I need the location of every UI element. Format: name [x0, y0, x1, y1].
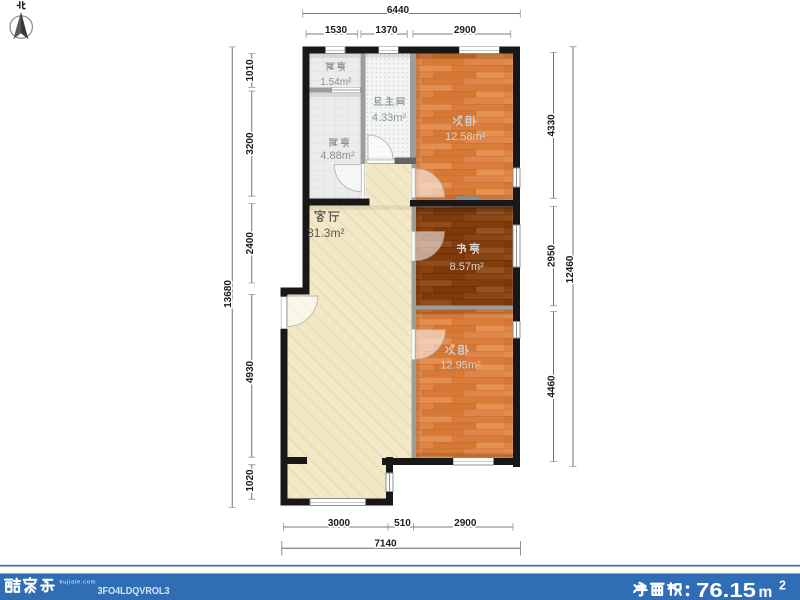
svg-text:13680: 13680: [223, 280, 234, 308]
svg-text:4930: 4930: [245, 360, 256, 383]
svg-text:m: m: [759, 584, 773, 600]
svg-text:76.15: 76.15: [696, 579, 756, 600]
svg-text:4.88m²: 4.88m²: [320, 150, 355, 162]
svg-text:7140: 7140: [374, 539, 397, 550]
svg-text:kujiale.com: kujiale.com: [60, 579, 97, 585]
svg-text:2900: 2900: [454, 25, 477, 36]
svg-text:2950: 2950: [547, 244, 558, 267]
svg-text:12.95m²: 12.95m²: [440, 359, 481, 371]
svg-text:12.58m²: 12.58m²: [445, 131, 486, 143]
svg-text:12460: 12460: [565, 255, 576, 283]
svg-text:2: 2: [779, 579, 786, 593]
svg-text:510: 510: [394, 518, 411, 529]
svg-text:1.54m²: 1.54m²: [320, 77, 352, 88]
svg-text:1010: 1010: [245, 59, 256, 82]
svg-text:4330: 4330: [547, 114, 558, 137]
svg-text:2400: 2400: [245, 232, 256, 255]
svg-text:3000: 3000: [328, 518, 351, 529]
svg-text:3FO4LDQVROL3: 3FO4LDQVROL3: [98, 585, 170, 597]
svg-text:31.3m²: 31.3m²: [307, 226, 344, 240]
svg-text:1530: 1530: [325, 25, 348, 36]
svg-text:1370: 1370: [375, 25, 398, 36]
svg-text:1020: 1020: [245, 469, 256, 492]
svg-text:6440: 6440: [387, 5, 410, 16]
svg-text:4460: 4460: [547, 375, 558, 398]
svg-text:2900: 2900: [454, 518, 477, 529]
svg-text:3200: 3200: [245, 132, 256, 155]
svg-text:8.57m²: 8.57m²: [450, 261, 485, 273]
svg-text:4.33m²: 4.33m²: [372, 112, 407, 124]
